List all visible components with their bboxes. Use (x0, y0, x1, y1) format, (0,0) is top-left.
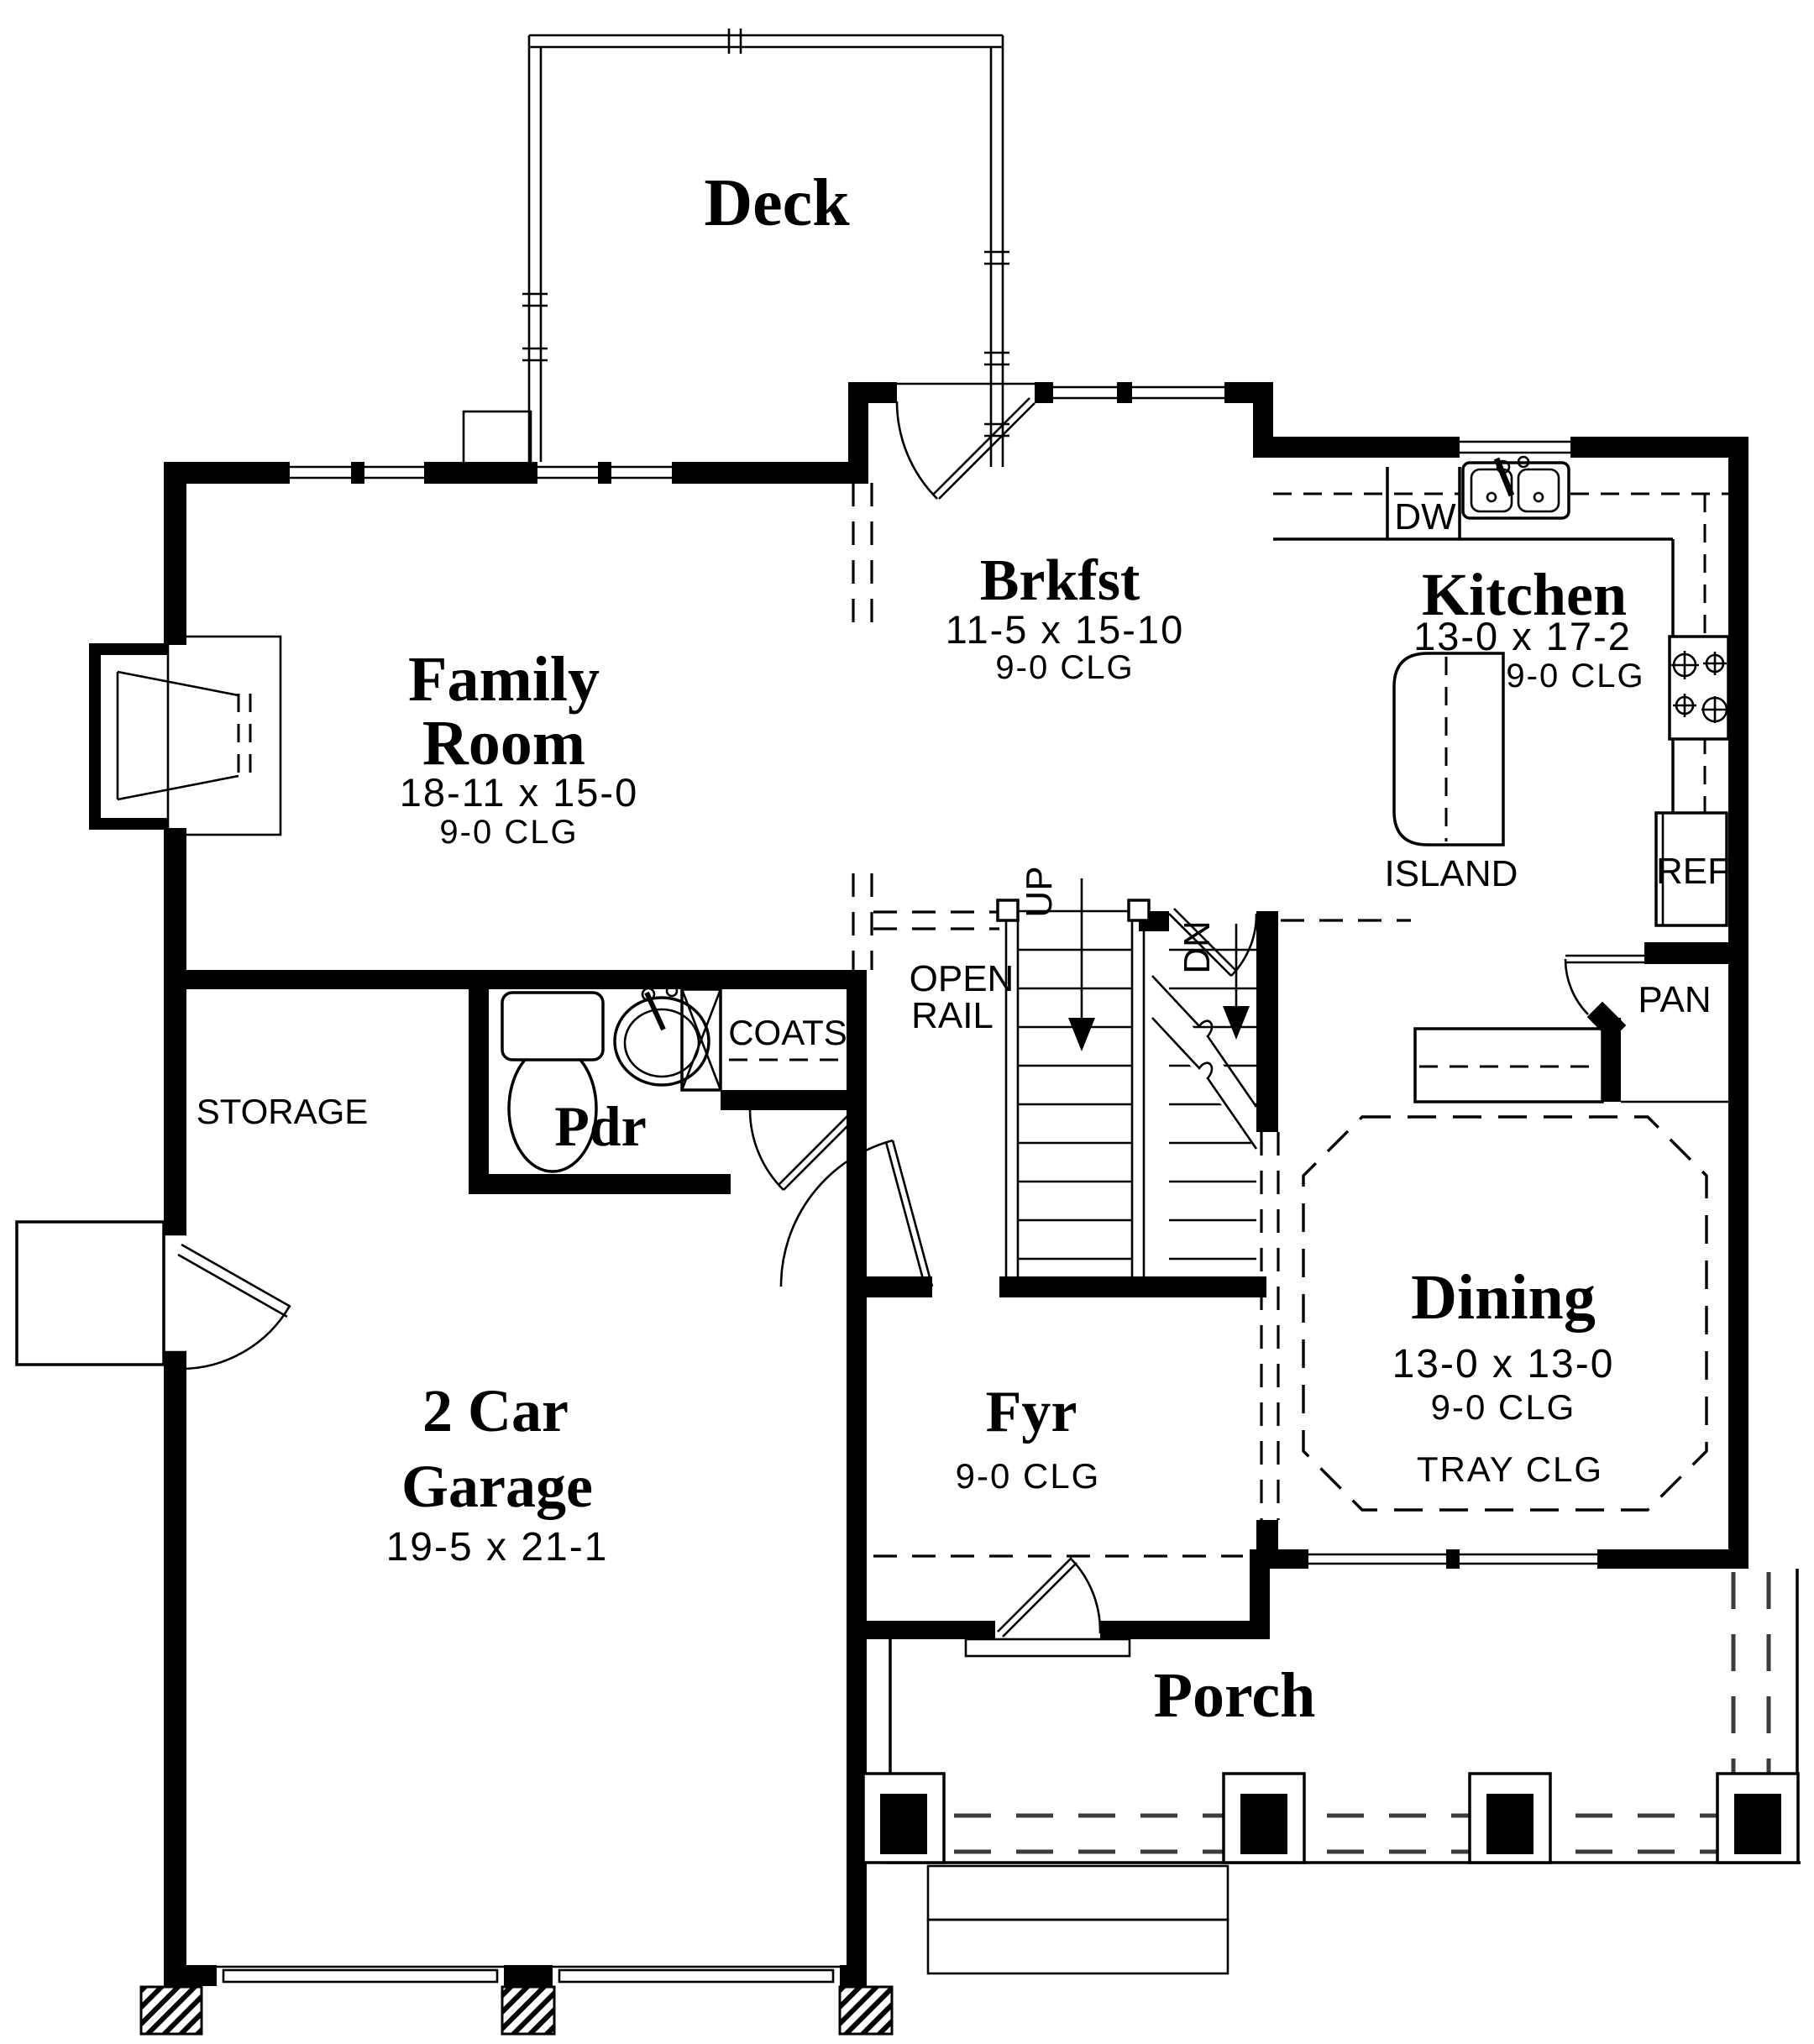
pantry-label: PAN (1638, 979, 1711, 1020)
newel-post (1129, 900, 1149, 920)
dining-ceiling: 9-0 CLG (1431, 1387, 1576, 1427)
porch-label: Porch (1154, 1660, 1316, 1731)
fireplace (89, 637, 280, 835)
porch-steps (928, 1866, 1228, 1973)
down-arrow-head (1223, 1006, 1250, 1040)
garage-label-1: 2 Car (422, 1377, 569, 1444)
refrigerator-label: REF (1656, 851, 1730, 892)
porch-post (1224, 1774, 1304, 1863)
dining-label: Dining (1411, 1262, 1596, 1333)
foyer-label: Fyr (986, 1380, 1077, 1444)
porch-post (1717, 1774, 1798, 1863)
powder-sink (615, 986, 709, 1085)
newel-post (998, 900, 1018, 920)
porch-post (863, 1774, 944, 1863)
breakfast-windows (1053, 382, 1224, 403)
breakfast-ceiling: 9-0 CLG (995, 649, 1134, 686)
dining-dims: 13-0 x 13-0 (1392, 1342, 1615, 1386)
cooktop (1670, 637, 1728, 739)
powder-room-label: Pdr (554, 1094, 647, 1158)
side-stoop (17, 1222, 164, 1365)
open-rail-label-1: OPEN (910, 958, 1014, 999)
floor-plan: DW ISLAND (0, 0, 1814, 2044)
dishwasher: DW (1387, 467, 1460, 539)
open-rail-label-2: RAIL (911, 995, 994, 1036)
garage-label-2: Garage (401, 1453, 593, 1520)
storage-label: STORAGE (197, 1092, 369, 1131)
kitchen-ceiling: 9-0 CLG (1506, 658, 1644, 694)
hall-counter (1415, 1029, 1602, 1102)
family-room-window-right (537, 462, 672, 484)
powder-door (750, 1105, 863, 1190)
garage-dims: 19-5 x 21-1 (386, 1525, 609, 1570)
breakfast-deck-door (897, 384, 1035, 499)
kitchen-area: DW ISLAND (1273, 457, 1730, 1102)
dining-tray-note: TRAY CLG (1417, 1449, 1603, 1489)
dishwasher-label: DW (1394, 496, 1456, 537)
garage-door-panel (223, 1970, 497, 1982)
garage-side-door (17, 1222, 291, 1369)
front-door-sill (966, 1639, 1130, 1656)
floor-plan-page: DW ISLAND (0, 0, 1814, 2044)
stairs-up-label: UP (1019, 866, 1060, 917)
coats-label: COATS (728, 1013, 847, 1052)
foundation-pier (840, 1987, 892, 2034)
fireplace-hearth (168, 637, 280, 835)
pantry-door-arc (1565, 959, 1588, 1014)
breakfast-label: Brkfst (980, 548, 1140, 613)
family-room-ceiling: 9-0 CLG (439, 814, 578, 851)
refrigerator: REF (1656, 813, 1730, 925)
room-labels: Deck Family Room 18-11 x 15-0 9-0 CLG Br… (197, 166, 1645, 1731)
porch-structure (863, 1569, 1801, 1973)
foundation-pier (141, 1987, 202, 2034)
family-room-label-2: Room (422, 708, 585, 778)
island-label: ISLAND (1385, 853, 1518, 894)
dining-windows (1308, 1549, 1597, 1569)
garage-door-panel (559, 1970, 833, 1982)
stairs-up-treads (1018, 950, 1132, 1259)
foundation-pier (502, 1987, 554, 2034)
deck-step (464, 411, 531, 467)
breakfast-dims: 11-5 x 15-10 (946, 607, 1184, 652)
deck-label: Deck (704, 166, 850, 240)
kitchen-sink (1463, 457, 1569, 518)
kitchen-dims: 13-0 x 17-2 (1413, 614, 1632, 658)
foyer-ceiling: 9-0 CLG (956, 1456, 1101, 1496)
kitchen-sink-window (1460, 437, 1570, 458)
family-room-window-left (290, 462, 424, 484)
up-arrow-head (1068, 1018, 1095, 1051)
deck-outline (464, 29, 1009, 467)
porch-post (1470, 1774, 1550, 1863)
kitchen-island: ISLAND (1385, 653, 1518, 894)
stair-break-mask (1152, 976, 1256, 1149)
family-room-dims: 18-11 x 15-0 (400, 770, 638, 815)
family-room-label-1: Family (408, 644, 600, 715)
front-door (966, 1558, 1130, 1656)
